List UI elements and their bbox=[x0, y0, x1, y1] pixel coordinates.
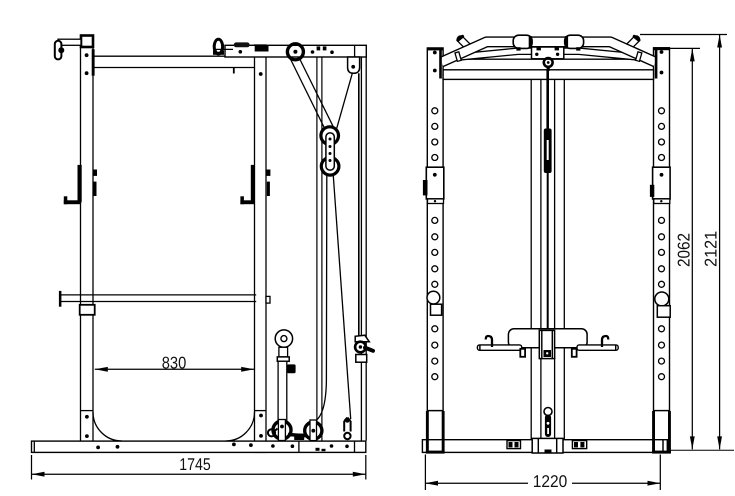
svg-text:2121: 2121 bbox=[701, 231, 720, 267]
svg-text:830: 830 bbox=[162, 353, 187, 372]
svg-text:1220: 1220 bbox=[533, 472, 568, 491]
svg-text:2062: 2062 bbox=[675, 233, 694, 267]
svg-text:1745: 1745 bbox=[179, 455, 211, 474]
